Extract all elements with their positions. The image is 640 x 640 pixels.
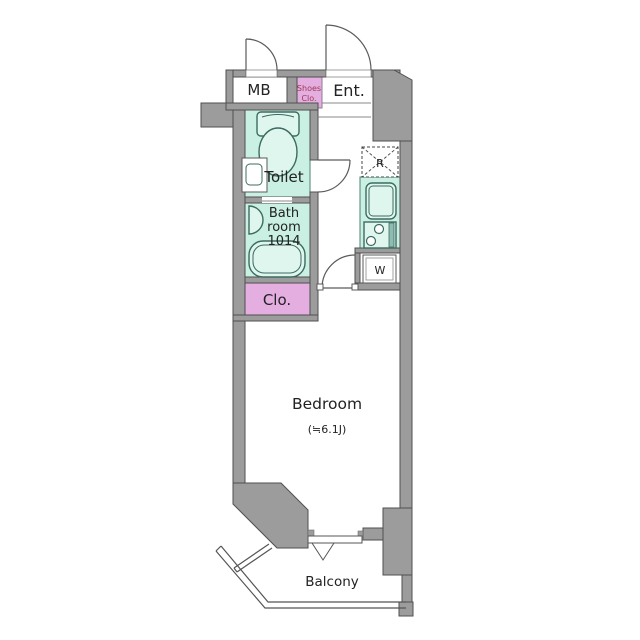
- bath-label-line1: Bath: [269, 206, 299, 221]
- pillar-bottom-left-chamfer: [233, 483, 308, 548]
- shoes-closet-label-line2: Clo.: [301, 94, 316, 103]
- floor-plan-drawing: MB Shoes Clo. Ent. Toilet Bath room 1014…: [0, 0, 640, 640]
- balcony-window-icon: [308, 536, 362, 543]
- wall-toilet-right-upper: [310, 110, 318, 160]
- pillar-top-right: [373, 70, 412, 141]
- kitchen-counter-strip: [389, 223, 394, 247]
- shoes-closet-label-line1: Shoes: [297, 84, 321, 93]
- entrance-label: Ent.: [333, 81, 365, 100]
- pillar-bottom-right: [383, 508, 412, 575]
- bedroom-door-swing-icon: [322, 255, 355, 288]
- balcony-label: Balcony: [305, 574, 359, 590]
- bedroom-label: Bedroom: [292, 395, 362, 413]
- window-direction-triangle-icon: [312, 543, 334, 560]
- wall-closet-bottom: [233, 315, 318, 321]
- closet-label: Clo.: [263, 291, 291, 309]
- entrance-door-swing-icon: [326, 25, 371, 70]
- bath-door-opening: [262, 197, 292, 203]
- entrance-door-opening: [326, 70, 371, 77]
- bedroom-size-label: (≒6.1J): [308, 423, 347, 436]
- wall-right-below-pillar: [402, 575, 412, 605]
- wall-kitchen-bottom: [355, 248, 400, 253]
- wall-under-washer: [355, 283, 400, 290]
- wall-bath-closet-divider: [245, 277, 310, 283]
- wall-toilet-right-lower: [310, 192, 318, 321]
- bedroom-door-jamb-right: [352, 284, 358, 290]
- toilet-door-swing-icon: [318, 160, 350, 192]
- refrigerator-label: R: [376, 157, 384, 170]
- wall-north-interior: [226, 103, 318, 110]
- bath-label-line3: 1014: [267, 234, 300, 249]
- toilet-label: Toilet: [263, 168, 303, 186]
- balcony-railing-cap: [216, 546, 221, 551]
- mb-door-opening: [246, 70, 277, 77]
- wall-right-foot: [399, 602, 413, 616]
- burner-icon-2: [367, 237, 376, 246]
- bath-label-line2: room: [267, 220, 301, 235]
- wall-right-main: [400, 141, 412, 508]
- wall-washer-left: [355, 253, 360, 283]
- washer-label: W: [375, 264, 386, 277]
- balcony-elements: [216, 536, 406, 608]
- floor-plan: MB Shoes Clo. Ent. Toilet Bath room 1014…: [0, 0, 640, 640]
- burner-icon-1: [375, 225, 384, 234]
- wall-top-middle: [277, 70, 326, 77]
- bedroom-door-jamb-left: [317, 284, 323, 290]
- pillar-step: [363, 528, 383, 540]
- mb-label: MB: [247, 81, 270, 99]
- mb-door-swing-icon: [246, 39, 277, 70]
- wall-mb-left: [226, 70, 233, 103]
- kitchen-sink-icon: [366, 183, 396, 219]
